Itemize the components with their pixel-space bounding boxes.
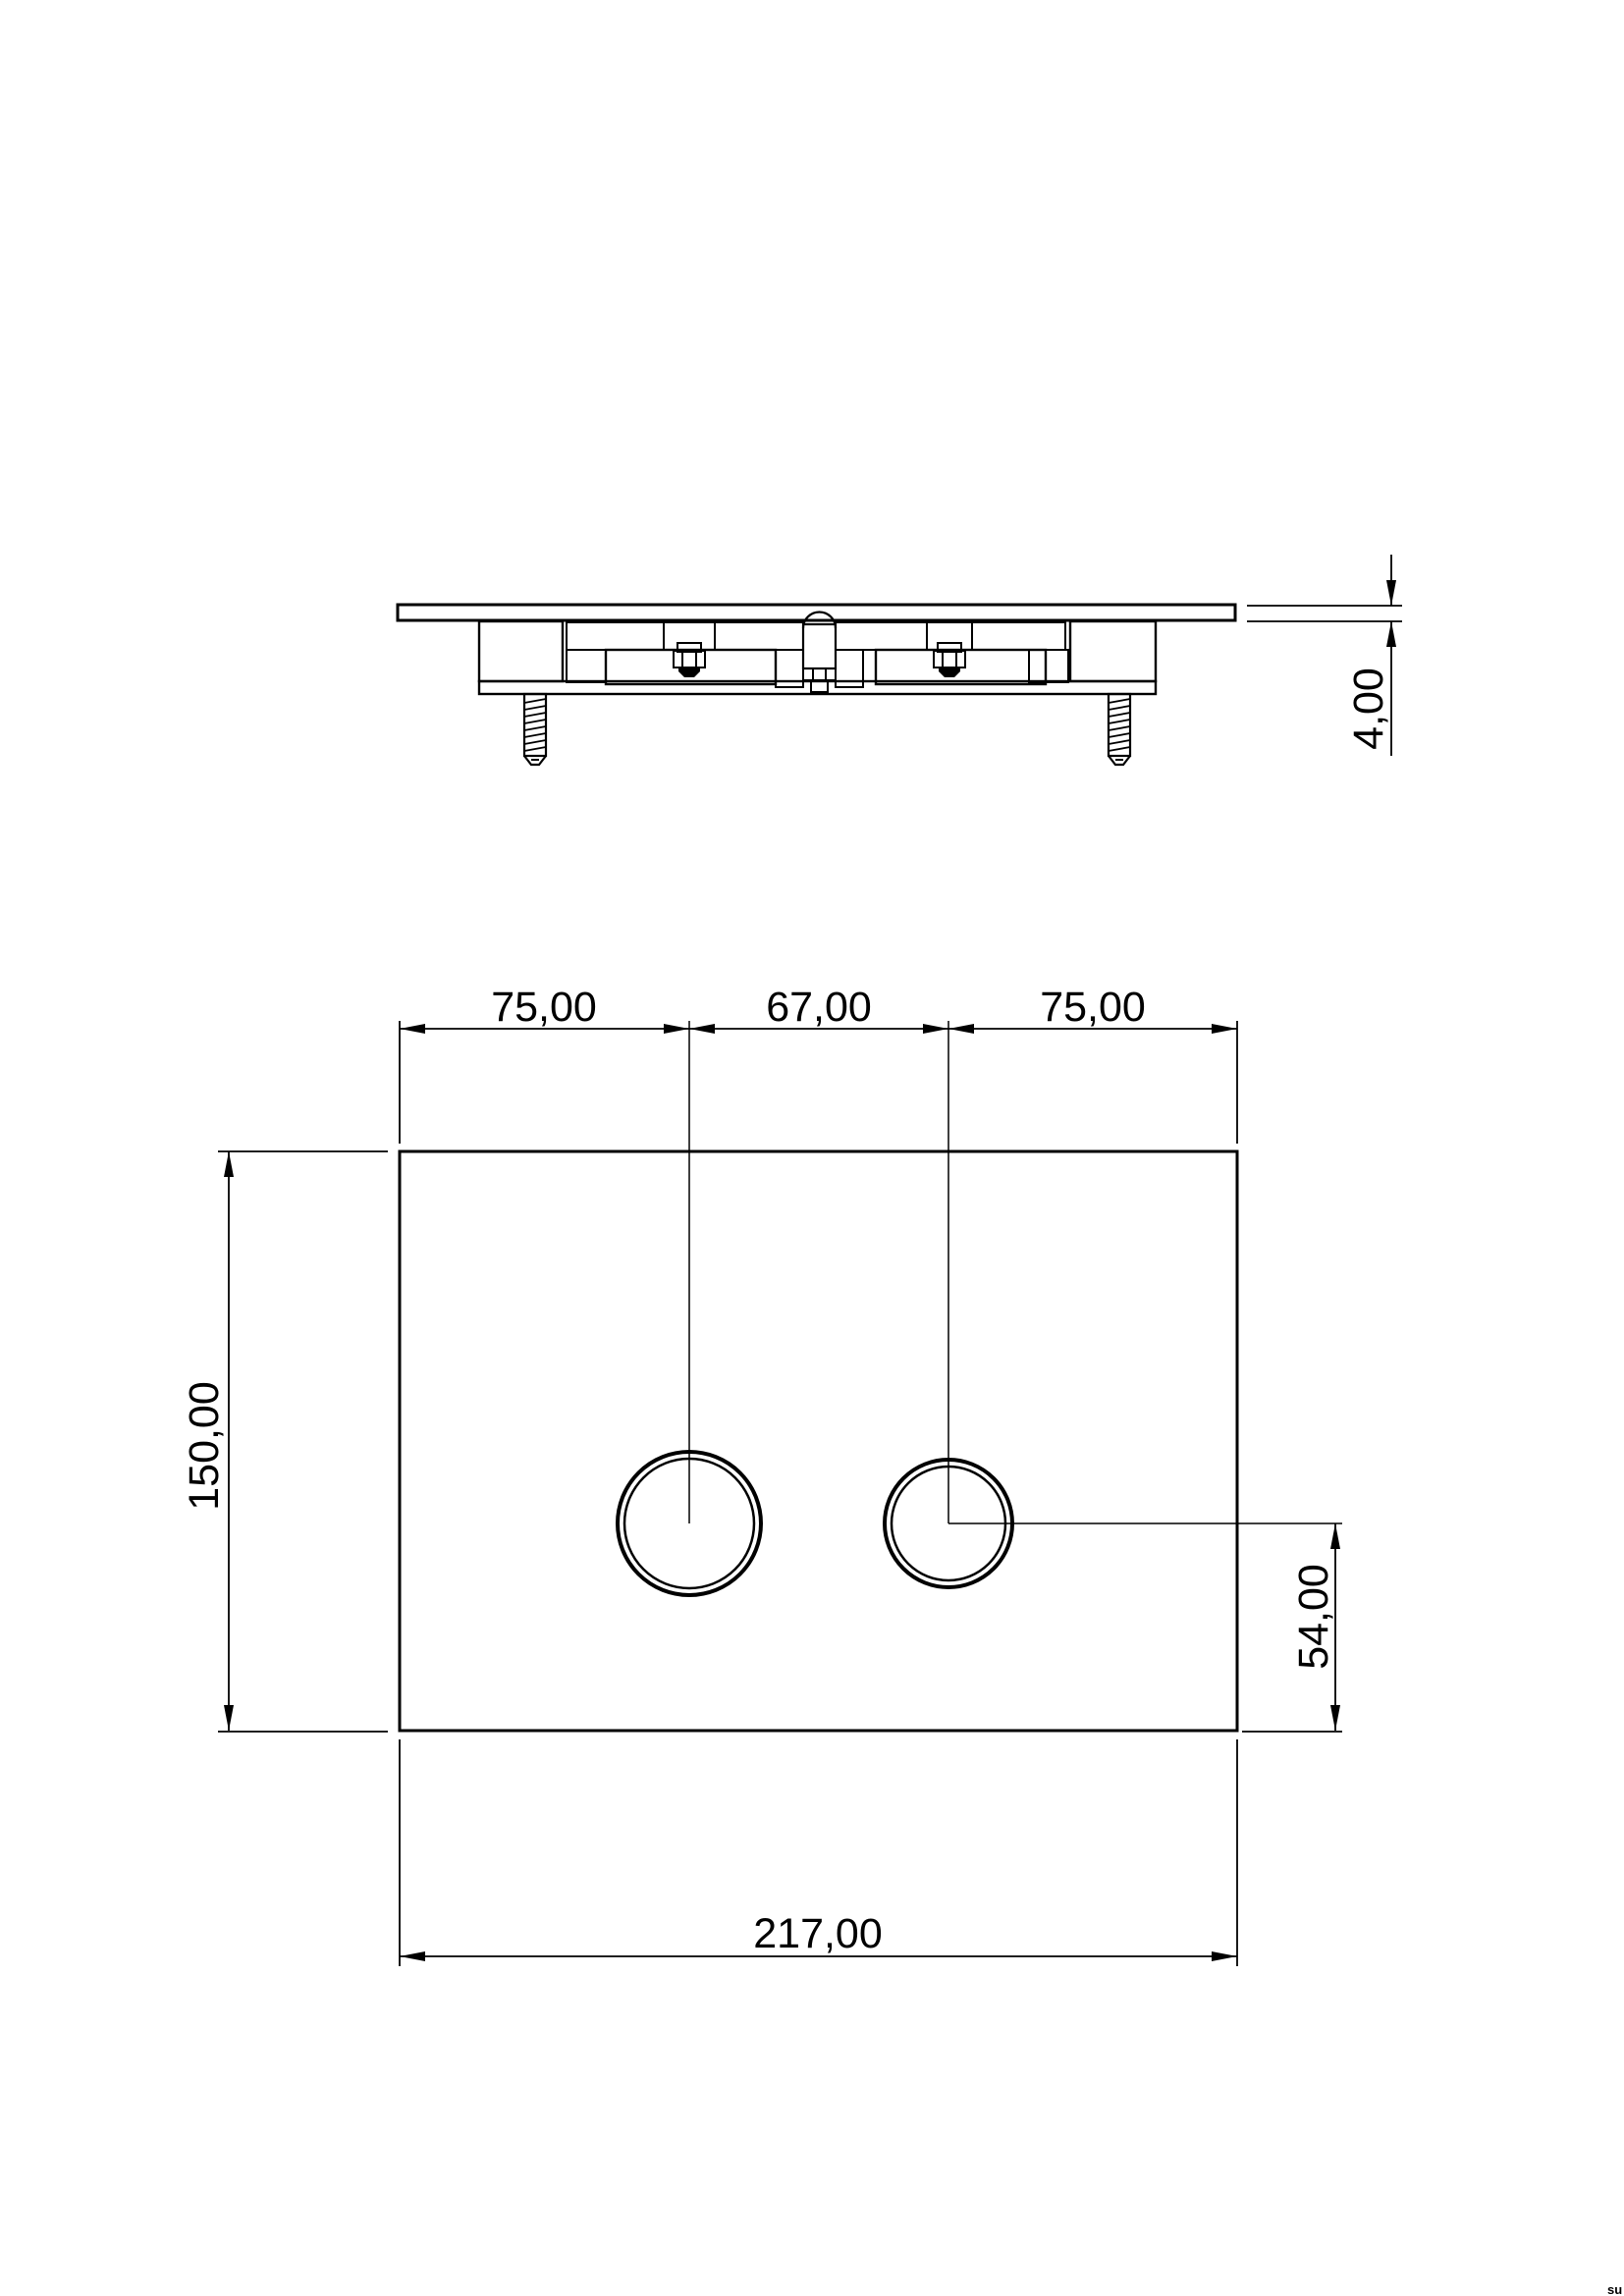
dimension-button-offset: 54,00 xyxy=(1242,1523,1342,1732)
screw-shaft xyxy=(524,694,546,756)
arrowhead xyxy=(1386,621,1396,647)
clip-body xyxy=(803,624,836,668)
side-view xyxy=(398,605,1235,765)
side-right-end-block xyxy=(1070,621,1156,681)
arrowhead xyxy=(400,1024,425,1034)
screw-thread xyxy=(524,699,546,703)
dimension-value: 75,00 xyxy=(1040,984,1146,1031)
side-left-end-block xyxy=(479,621,563,681)
screw-thread xyxy=(1109,706,1130,710)
arrowhead xyxy=(400,1951,425,1961)
arrowhead xyxy=(948,1024,974,1034)
bolt-washer xyxy=(939,667,960,677)
arrowhead xyxy=(224,1705,234,1731)
arrowhead xyxy=(224,1151,234,1177)
side-bolt-left xyxy=(674,643,705,677)
side-screw-left xyxy=(524,694,546,765)
screw-thread xyxy=(524,747,546,751)
arrowhead xyxy=(689,1024,715,1034)
screw-thread xyxy=(1109,713,1130,717)
dimension-value: 75,00 xyxy=(491,984,597,1031)
arrowhead xyxy=(1212,1024,1237,1034)
arrowhead xyxy=(1330,1705,1340,1731)
screw-thread xyxy=(524,726,546,730)
bolt-hex-nut xyxy=(934,651,965,667)
technical-drawing: 4,00 75,00 67,00 75,00 150,00 xyxy=(0,0,1624,2296)
bolt-hex-nut xyxy=(674,651,705,667)
side-upper-band-right xyxy=(836,622,1065,650)
screw-thread xyxy=(1109,740,1130,744)
dimension-value: 217,00 xyxy=(753,1910,883,1957)
arrowhead xyxy=(1330,1523,1340,1549)
bolt-washer xyxy=(678,667,700,677)
dimension-value: 54,00 xyxy=(1290,1564,1337,1670)
screw-thread xyxy=(524,740,546,744)
front-view xyxy=(400,1021,1342,1731)
side-screw-right xyxy=(1109,694,1130,765)
dimension-value: 4,00 xyxy=(1345,667,1392,750)
side-step-left xyxy=(567,650,606,682)
dimension-thickness: 4,00 xyxy=(1247,555,1402,756)
dimension-top-spacing: 75,00 67,00 75,00 xyxy=(400,984,1237,1144)
screw-thread xyxy=(524,733,546,737)
arrowhead xyxy=(1212,1951,1237,1961)
watermark-label: su xyxy=(1607,2282,1622,2296)
arrowhead xyxy=(923,1024,948,1034)
arrowhead xyxy=(1386,580,1396,606)
arrowhead xyxy=(664,1024,689,1034)
side-bolt-right xyxy=(934,643,965,677)
side-step-right xyxy=(1029,650,1068,682)
screw-shaft xyxy=(1109,694,1130,756)
screw-thread xyxy=(1109,747,1130,751)
screw-thread xyxy=(1109,699,1130,703)
clip-nut xyxy=(803,668,836,680)
screw-thread xyxy=(1109,720,1130,723)
dimension-height: 150,00 xyxy=(181,1151,388,1732)
plate-outline xyxy=(400,1151,1237,1731)
screw-thread xyxy=(1109,733,1130,737)
side-centre-clip xyxy=(803,613,836,693)
screw-thread xyxy=(524,706,546,710)
screw-thread xyxy=(524,713,546,717)
dimension-value: 150,00 xyxy=(181,1381,228,1511)
screw-thread xyxy=(1109,726,1130,730)
screw-thread xyxy=(524,720,546,723)
side-upper-band-left xyxy=(567,622,803,650)
dimension-width: 217,00 xyxy=(400,1739,1237,1966)
dimension-value: 67,00 xyxy=(766,984,872,1031)
drawing-sheet: 4,00 75,00 67,00 75,00 150,00 xyxy=(0,0,1624,2296)
